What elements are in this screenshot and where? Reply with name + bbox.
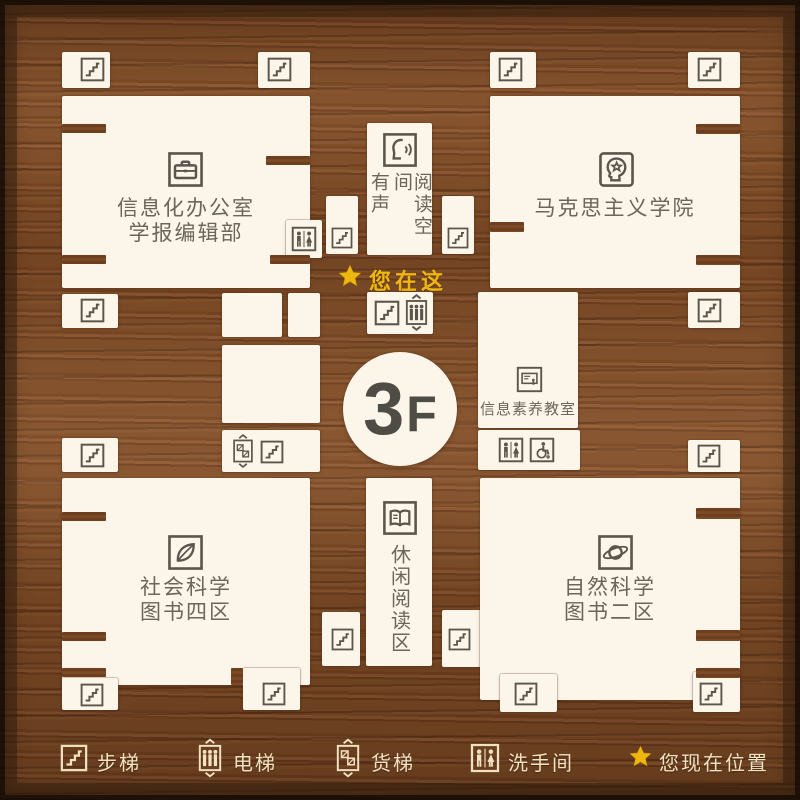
stairs-icon: [447, 227, 469, 249]
star-icon: [336, 262, 364, 290]
elevator-icon: [404, 294, 429, 331]
stairs-icon: [60, 744, 88, 772]
legend-label-current-location: 您现在位置: [659, 747, 769, 776]
wall-notch: [62, 512, 106, 521]
wall-notch: [696, 630, 740, 641]
room-unlabeled: [222, 293, 282, 337]
room-label: 图书二区: [480, 600, 740, 624]
stairs-icon: [514, 682, 538, 706]
floor-number: 3: [363, 372, 404, 446]
stairs-icon: [80, 443, 105, 468]
star-icon: [627, 743, 654, 770]
stairs-icon: [262, 682, 286, 706]
open-book-icon: [382, 500, 418, 536]
room-label: 信息化办公室: [62, 196, 310, 220]
legend-label-freight-elevator: 货梯: [371, 747, 415, 776]
room-label: 马克思主义学院: [490, 196, 740, 220]
stairs-icon: [374, 300, 400, 326]
stairs-icon: [697, 298, 722, 323]
wall-notch: [696, 508, 740, 519]
restroom-icon: [291, 226, 317, 252]
legend-label-restroom: 洗手间: [508, 747, 574, 776]
wall-notch: [62, 632, 106, 641]
stairs-icon: [498, 57, 523, 82]
room-label: 图书四区: [62, 600, 310, 624]
wall-notch: [270, 255, 310, 264]
head-star-icon: [598, 151, 635, 188]
freight-elevator-icon: [231, 434, 255, 468]
legend-label-stairs: 步梯: [97, 747, 141, 776]
room-label: 自然科学: [480, 575, 740, 599]
wall-notch: [490, 222, 524, 232]
stairs-icon: [267, 57, 292, 82]
briefcase-icon: [167, 151, 204, 188]
stairs-icon: [697, 444, 721, 468]
elevator-icon: [197, 738, 223, 778]
stairs-icon: [80, 298, 105, 323]
wheelchair-icon: [529, 437, 555, 463]
leaf-icon: [167, 534, 204, 571]
stairs-icon: [331, 227, 353, 249]
stairs-icon: [80, 683, 104, 707]
stairs-icon: [448, 628, 471, 651]
stairs-icon: [331, 628, 354, 651]
wall-notch: [231, 668, 243, 685]
room-label-vertical: 休闲阅读区: [389, 544, 410, 654]
wall-notch: [696, 124, 740, 134]
stairs-icon: [260, 440, 284, 464]
wall-notch: [696, 668, 740, 678]
wall-notch: [62, 255, 106, 264]
wall-notch: [62, 668, 106, 677]
speaking-face-icon: [382, 132, 418, 168]
saturn-icon: [597, 534, 634, 571]
screen-icon: [516, 366, 543, 393]
stairs-icon: [80, 57, 105, 82]
room-label: 学报编辑部: [62, 221, 310, 245]
legend-label-elevator: 电梯: [233, 747, 277, 776]
stairs-icon: [699, 682, 723, 706]
floor-suffix: F: [406, 389, 437, 439]
room-label: 社会科学: [62, 575, 310, 599]
floor-map: 信息化办公室 学报编辑部 有声 阅读空间 马克思主义学院 您在这 3 F 信息素…: [0, 0, 800, 800]
restroom-icon: [498, 437, 524, 463]
floor-badge: 3 F: [343, 352, 457, 466]
wall-notch: [266, 156, 310, 165]
stairs-icon: [697, 57, 722, 82]
room-label-vertical: 阅读空间: [391, 172, 431, 258]
room-unlabeled: [222, 345, 320, 423]
wall-notch: [62, 124, 106, 133]
room-unlabeled: [288, 293, 320, 337]
wall-notch: [696, 255, 740, 265]
room-label: 信息素养教室: [478, 397, 578, 421]
restroom-icon: [470, 743, 500, 773]
room-label-vertical: 有声: [368, 172, 388, 216]
freight-elevator-icon: [335, 738, 361, 778]
